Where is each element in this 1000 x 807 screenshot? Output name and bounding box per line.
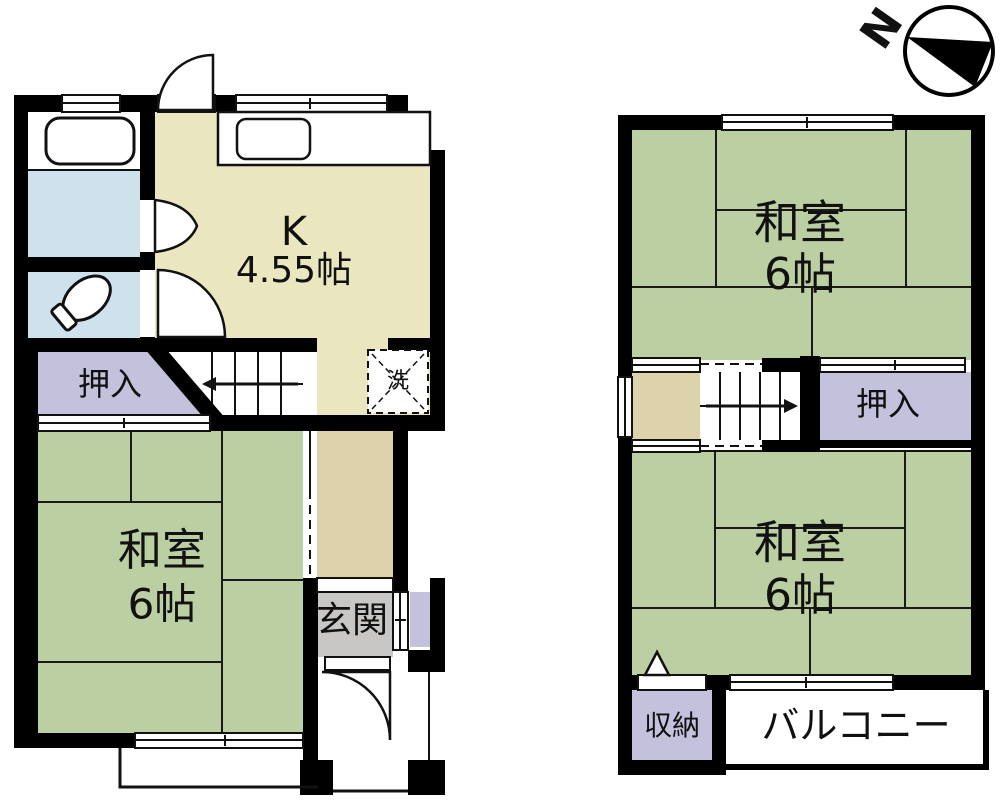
oshiire-2f-label: 押入 bbox=[856, 385, 920, 423]
washitsu-1f-window bbox=[135, 733, 303, 748]
kitchen-counter bbox=[218, 112, 430, 165]
washitsu-2f-top-size-label: 6帖 bbox=[764, 249, 836, 300]
stairs-2f bbox=[700, 372, 800, 440]
floor1: K 4.55帖 和室 6帖 押入 洗 玄関 bbox=[14, 55, 445, 795]
north-compass: N bbox=[851, 0, 993, 95]
laundry-label: 洗 bbox=[387, 369, 409, 394]
kitchen-sink bbox=[237, 119, 310, 159]
washitsu-2f-bottom-label: 和室 bbox=[754, 516, 846, 570]
landing-fusuma-top bbox=[632, 358, 700, 372]
hall-floor bbox=[317, 431, 393, 578]
balcony-sliding-door bbox=[730, 675, 893, 690]
floor-plan: K 4.55帖 和室 6帖 押入 洗 玄関 bbox=[0, 0, 1000, 803]
storage-door bbox=[638, 675, 706, 690]
washitsu-2f-top-window bbox=[722, 115, 893, 130]
bathtub bbox=[46, 118, 134, 164]
landing-floor bbox=[632, 372, 700, 440]
oshiire-2f-sliding-door bbox=[820, 358, 965, 372]
bath-door-gap bbox=[140, 200, 155, 252]
storage-label: 収納 bbox=[644, 709, 700, 742]
landing-fusuma-bottom bbox=[632, 440, 700, 452]
toilet-door-gap bbox=[140, 270, 155, 337]
kitchen-label: K bbox=[281, 209, 309, 255]
oshiire-1f-sliding-door bbox=[38, 415, 210, 431]
genkan-step-lower bbox=[325, 657, 390, 670]
bath-window bbox=[62, 95, 120, 112]
kitchen-size-label: 4.55帖 bbox=[236, 250, 352, 291]
washitsu-2f-top-label: 和室 bbox=[754, 196, 846, 250]
landing-window bbox=[618, 377, 632, 437]
approach-step-outline bbox=[120, 748, 318, 787]
genkan-side-window bbox=[393, 592, 408, 650]
bathroom-floor bbox=[20, 170, 140, 257]
back-door-swing bbox=[158, 55, 213, 110]
balcony-label: バルコニー bbox=[761, 704, 950, 748]
floor2: 和室 6帖 和室 6帖 押入 収納 バルコニー bbox=[618, 115, 986, 775]
washitsu-1f-label: 和室 bbox=[118, 525, 206, 576]
washitsu-2f-bottom-size-label: 6帖 bbox=[764, 570, 836, 621]
genkan-label: 玄関 bbox=[316, 600, 388, 641]
washitsu-1f-size-label: 6帖 bbox=[128, 580, 197, 629]
kitchen-window bbox=[236, 95, 387, 112]
shoe-cabinet bbox=[410, 592, 432, 647]
genkan-step-upper bbox=[317, 578, 393, 592]
oshiire-1f-label: 押入 bbox=[78, 365, 142, 403]
